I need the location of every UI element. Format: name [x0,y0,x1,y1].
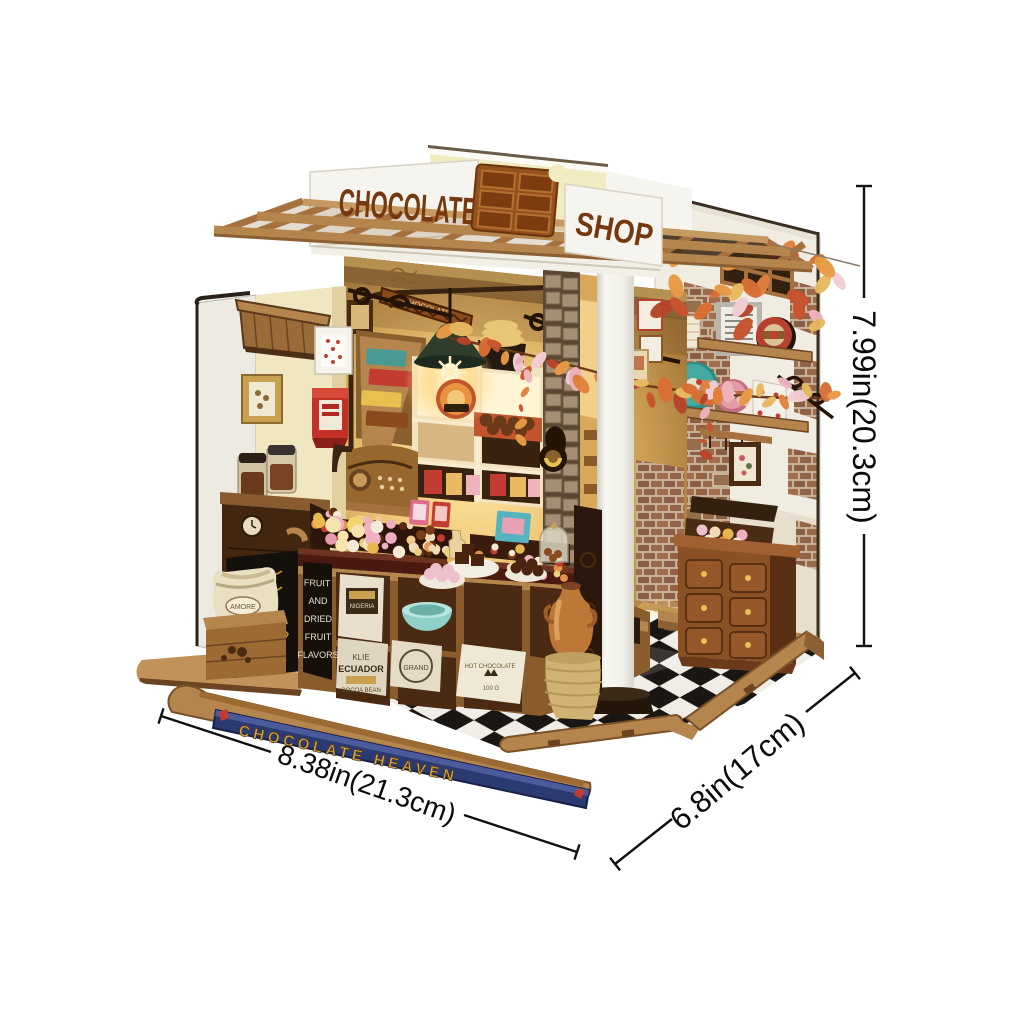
svg-text:HOT CHOCOLATE: HOT CHOCOLATE [464,664,515,670]
svg-text:AMORE: AMORE [230,604,256,611]
svg-text:KLIE: KLIE [352,653,369,662]
svg-text:ECUADOR: ECUADOR [338,664,384,674]
svg-text:FRUIT: FRUIT [304,578,331,589]
svg-text:DRIED: DRIED [304,614,333,624]
svg-text:NIGERIA: NIGERIA [350,604,375,610]
svg-text:AND: AND [308,596,328,606]
svg-text:FRUIT: FRUIT [305,632,332,642]
svg-text:FLAVORS: FLAVORS [297,650,338,660]
svg-text:GRAND: GRAND [403,665,428,672]
svg-text:100 G: 100 G [483,686,500,692]
svg-text:COCOA BEAN: COCOA BEAN [341,688,381,694]
svg-text:7.99in(20.3cm): 7.99in(20.3cm) [846,310,882,523]
